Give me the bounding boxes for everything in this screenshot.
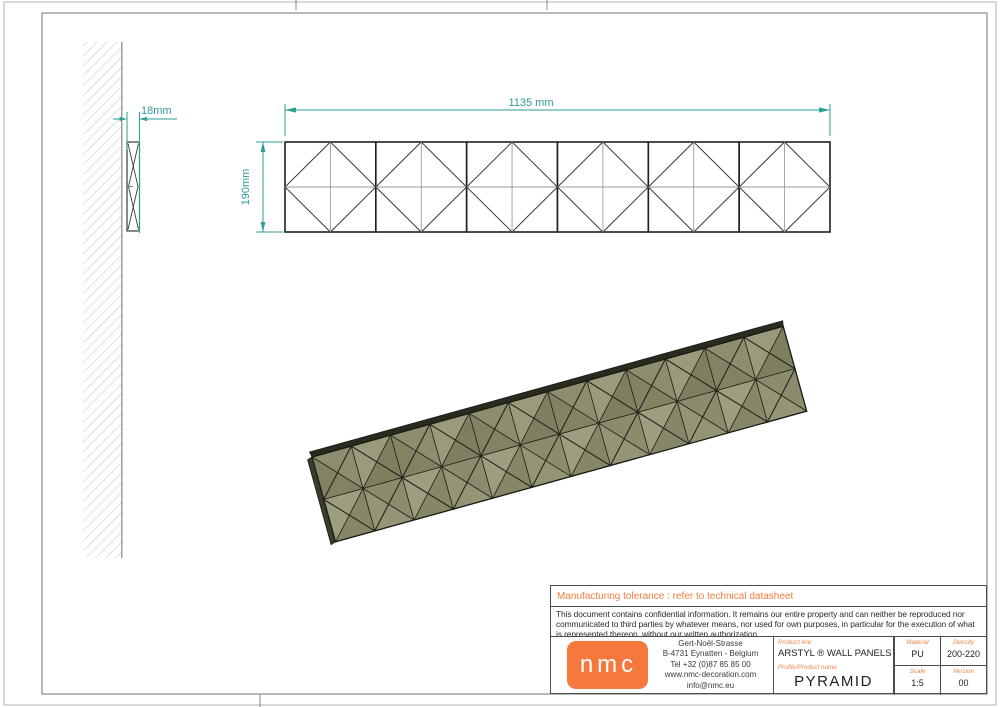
title-block: nmc Gert-Noël-Strasse B-4731 Eynatten - … bbox=[550, 636, 987, 694]
front-tile bbox=[648, 142, 739, 232]
address-line: www.nmc-decoration.com bbox=[648, 670, 773, 680]
height-dimension bbox=[256, 142, 283, 232]
density-label: Density bbox=[941, 639, 986, 646]
tolerance-note: Manufacturing tolerance : refer to techn… bbox=[550, 585, 987, 607]
product-name-label: Profile/Product name bbox=[778, 664, 889, 671]
address-line: B-4731 Eynatten - Belgium bbox=[648, 649, 773, 659]
height-dimension-label: 190mm bbox=[240, 169, 252, 206]
width-dimension bbox=[285, 104, 830, 136]
address-line: Gert-Noël-Strasse bbox=[648, 639, 773, 649]
material-cell: Material PU bbox=[894, 637, 940, 666]
company-address: Gert-Noël-Strasse B-4731 Eynatten - Belg… bbox=[648, 639, 773, 691]
product-name-value: PYRAMID bbox=[778, 673, 889, 690]
address-line: info@nmc.eu bbox=[648, 681, 773, 691]
confidentiality-note: This document contains confidential info… bbox=[550, 606, 987, 637]
product-line-label: Product line bbox=[778, 639, 889, 646]
scale-value: 1:5 bbox=[895, 678, 940, 688]
panel-front-view bbox=[285, 142, 830, 232]
fold-marks bbox=[260, 0, 547, 707]
drawing-sheet: 18mm 1135 mm 190mm Manuf bbox=[0, 0, 1000, 707]
scale-label: Scale bbox=[895, 668, 940, 675]
front-tile bbox=[739, 142, 830, 232]
thickness-dimension-label: 18mm bbox=[141, 105, 172, 117]
front-tile bbox=[558, 142, 649, 232]
panel-side-view bbox=[127, 142, 140, 231]
nmc-logo: nmc bbox=[567, 641, 648, 689]
width-dimension-label: 1135 mm bbox=[508, 97, 553, 109]
thickness-dimension bbox=[113, 112, 177, 233]
address-line: Tel +32 (0)87 85 85 00 bbox=[648, 660, 773, 670]
material-value: PU bbox=[895, 649, 940, 659]
version-label: Version bbox=[941, 668, 986, 675]
product-cell: Product line ARSTYL ® WALL PANELS Profil… bbox=[774, 637, 894, 693]
density-cell: Density 200-220 bbox=[940, 637, 986, 666]
density-value: 200-220 bbox=[941, 649, 986, 659]
product-line-value: ARSTYL ® WALL PANELS bbox=[778, 648, 889, 659]
version-cell: Version 00 bbox=[940, 666, 986, 695]
front-tile bbox=[285, 142, 376, 232]
properties-grid: Material PU Density 200-220 Scale 1:5 Ve… bbox=[894, 637, 986, 693]
version-value: 00 bbox=[941, 678, 986, 688]
material-label: Material bbox=[895, 639, 940, 646]
scale-cell: Scale 1:5 bbox=[894, 666, 940, 695]
company-cell: nmc Gert-Noël-Strasse B-4731 Eynatten - … bbox=[551, 637, 774, 693]
front-tile bbox=[376, 142, 467, 232]
panel-3d-view bbox=[306, 321, 808, 545]
front-tile bbox=[467, 142, 558, 232]
